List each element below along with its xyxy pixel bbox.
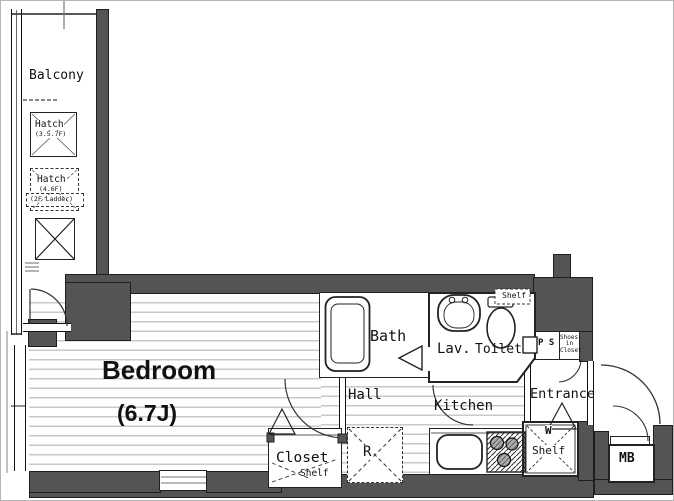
entrance-right-wall [578,421,594,481]
shoes-closet-label: Shoes-in Closet [560,335,579,354]
entrance-door-arc [601,365,660,424]
shoes-closet-line2: Closet [560,348,579,354]
vent-chimney-wall [553,254,571,279]
balcony-label: Balcony [29,69,84,83]
hatch-upper-floors: (3.5.7F) [35,131,66,138]
hatch-ladder-note: (2F Ladder) [30,196,73,203]
lavatory-label: Lav. [437,342,471,357]
bedroom-left-window [14,345,26,471]
bottom-wall-left [29,471,161,493]
floor-plan: Balcony Hatch (3.5.7F) Hatch (4.6F) (2F … [0,0,674,501]
basin-knob-right [462,297,468,303]
closet-label: Closet [276,451,328,466]
top-wall [65,274,535,294]
lavatory-room [429,293,535,382]
meter-box-label: MB [619,452,635,466]
pipe-space-label: P S [538,339,554,348]
refrigerator-space [347,427,403,483]
bedroom-label: Bedroom [102,357,216,384]
toilet-shelf-label: Shelf [502,292,526,300]
shoes-closet-line1: Shoes-in [560,335,579,348]
hall-label: Hall [348,388,382,403]
washer-label: W [545,425,552,437]
balcony-x-box [35,218,75,260]
toilet-label: Toilet [475,343,522,357]
balcony-left-rail [11,9,22,335]
washer-shelf-label: Shelf [532,445,565,457]
upper-left-wall-block [65,282,131,341]
bath-label: Bath [370,329,406,345]
balcony-right-wall [96,9,109,281]
balcony-door-threshold [23,323,71,332]
hatch-lower-label: Hatch [37,175,66,185]
kitchen-label: Kitchen [434,399,493,414]
refrigerator-label: R [361,445,373,460]
bedroom-size-label: (6.7J) [117,401,177,425]
bedroom-bottom-window [159,470,207,491]
wash-basin-inner [444,302,474,328]
hatch-upper-label: Hatch [35,120,64,130]
closet-shelf-label: Shelf [300,469,329,479]
upper-right-wall-block [533,277,593,333]
balcony-step-lines [25,263,39,271]
basin-knob-left [449,297,455,303]
kitchen-counter [429,428,528,475]
hatch-lower-floors: (4.6F) [39,186,62,193]
wash-basin [438,295,480,331]
entrance-label: Entrance [530,387,595,401]
